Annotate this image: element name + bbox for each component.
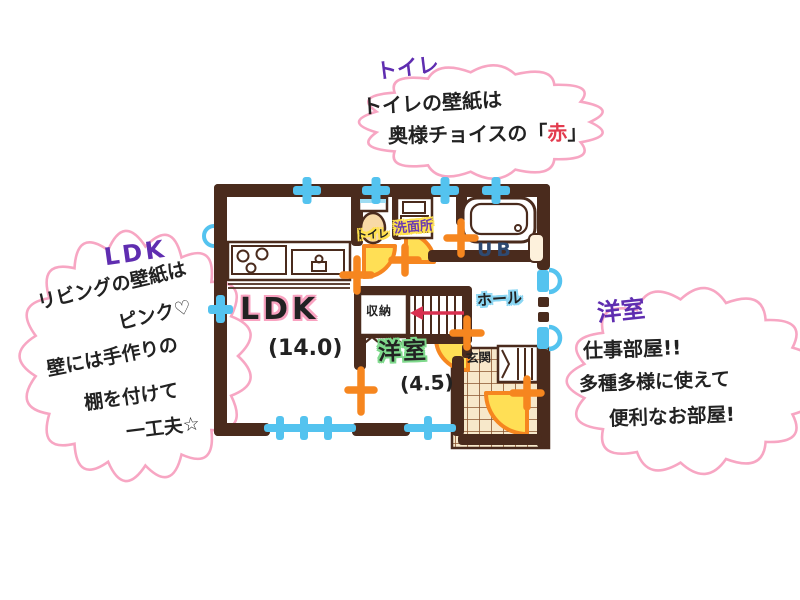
door-frame-ldk-youshitsu [348, 370, 374, 412]
toilet-bubble-line-2-accent: 赤 [547, 121, 567, 145]
youshitsu-room-size: (4.5) [400, 372, 455, 395]
toilet-bubble-line-2-prefix: 奥様チョイスの「 [388, 121, 548, 148]
wall-dashed-segment-1 [538, 297, 549, 307]
wall-bottom-left [214, 423, 270, 436]
hall-room-label: ホール [477, 290, 523, 308]
youshitsu-bubble-title: 洋室 [596, 297, 646, 326]
youshitsu-bubble-line-3: 便利なお部屋! [609, 405, 736, 429]
window-bottom-1-tick-b [300, 416, 308, 440]
window-top-3-tick [441, 177, 450, 204]
toilet-bubble-line-2: 奥様チョイスの「赤」 [388, 122, 588, 145]
youshitsu-bubble-line-2: 多種多様に使えて [579, 370, 731, 394]
window-bottom-2-tick [424, 416, 432, 440]
window-top-2-tick [372, 177, 381, 204]
right-door-2-jamb [537, 327, 549, 349]
kitchen-counter-edge [228, 284, 350, 288]
window-top-4-tick [492, 177, 501, 204]
floor-plan-sketch: LDK (14.0) 洋室 (4.5) トイレ 洗面所 UB ホール 収納 玄関… [0, 0, 800, 600]
window-bottom-1-tick-a [276, 416, 284, 440]
stairs [406, 296, 464, 334]
right-door-1-jamb [537, 270, 549, 292]
toilet-bubble-line-2-suffix: 」 [567, 120, 587, 144]
left-wall-door [204, 226, 214, 246]
wall-entrance-bottom [458, 434, 542, 445]
toilet-room-label: トイレ [356, 228, 390, 241]
wall-bottom-mid [352, 423, 410, 436]
right-door-2 [549, 327, 560, 349]
youshitsu-room-label: 洋室 [378, 340, 429, 365]
bath-door [529, 234, 544, 262]
window-bottom-1-tick-c [324, 416, 332, 440]
washroom-room-label: 洗面所 [394, 219, 434, 235]
window-left-tick [208, 305, 233, 314]
window-top-1-tick [303, 177, 312, 204]
floor-plan [0, 0, 800, 600]
bath-room-label: UB [477, 241, 515, 260]
shoe-cabinet [498, 346, 538, 382]
closet-room-label: 収納 [366, 305, 392, 317]
entrance-room-label: 玄関 [466, 352, 491, 365]
right-door-1 [549, 270, 560, 292]
ldk-room-label: LDK [240, 295, 319, 325]
wall-dashed-segment-2 [538, 312, 549, 322]
ldk-room-size: (14.0) [268, 338, 342, 360]
wall-entrance-left [452, 356, 464, 436]
youshitsu-bubble-line-1: 仕事部屋!! [583, 337, 682, 360]
